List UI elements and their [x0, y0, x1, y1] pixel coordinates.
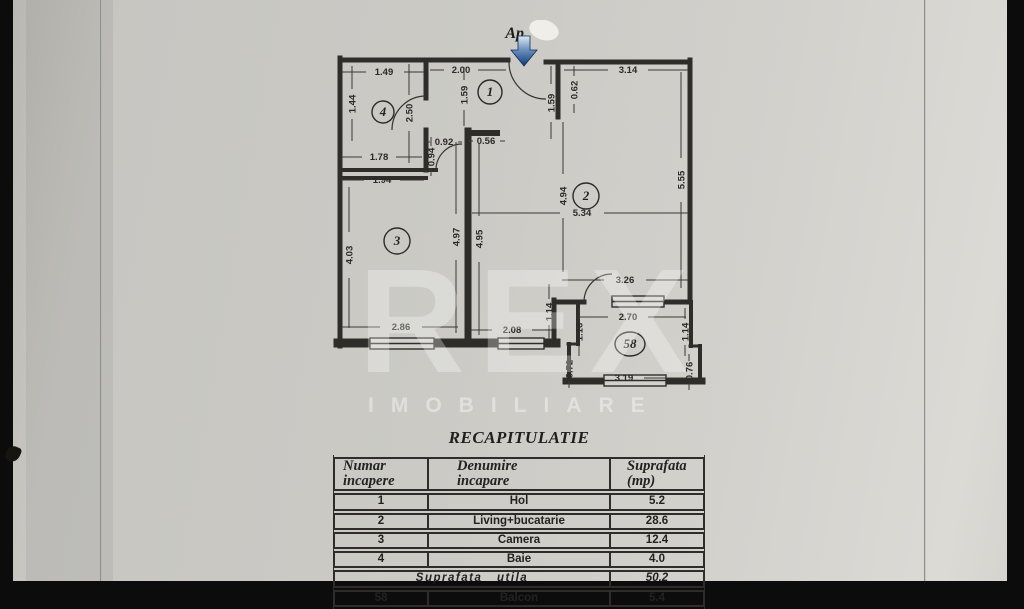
table-cell-num: 3	[334, 532, 428, 549]
table-cell-num: 4	[334, 551, 428, 568]
table-cell-name: Hol	[428, 493, 610, 510]
table-cell-name: Balcon	[428, 590, 610, 607]
table-row: 3 Camera 12.4	[334, 532, 704, 549]
header-numar-incapere: Numar incapere	[334, 457, 428, 491]
table-row: 2 Living+bucatarie 28.6	[334, 513, 704, 530]
dim-label: 2.70	[619, 312, 638, 323]
dim-label: 0.76	[685, 362, 696, 381]
redaction-blob	[527, 20, 561, 44]
table-cell-name: Living+bucatarie	[428, 513, 610, 530]
dim-label: 3.26	[616, 275, 635, 286]
dim-label: 0.92	[435, 137, 454, 148]
dim-label: 1.16	[575, 323, 586, 342]
table-cell-num: 58	[334, 590, 428, 607]
table-summary-row: Suprafata utila 50.2	[334, 570, 704, 587]
header-denumire-incapare: Denumire incapare	[428, 457, 610, 491]
table-cell-area: 28.6	[610, 513, 704, 530]
table-cell-name: Camera	[428, 532, 610, 549]
dim-label: 4.97	[452, 228, 463, 247]
table-row: 1 Hol 5.2	[334, 493, 704, 510]
dim-label: 5.34	[573, 208, 592, 219]
table-cell-num: 2	[334, 513, 428, 530]
room-number-living: 2	[582, 188, 590, 203]
dim-label: 1.49	[375, 67, 394, 78]
dim-label: 1.14	[545, 302, 556, 321]
header-suprafata-mp: Suprafata (mp)	[610, 457, 704, 491]
table-cell-name: Baie	[428, 551, 610, 568]
dim-label: 0.94	[427, 147, 438, 166]
room-number-labels: 4 1 2 3 58	[379, 84, 637, 351]
dim-label: 3.19	[615, 373, 634, 384]
recap-title: RECAPITULATIE	[333, 428, 705, 448]
dim-label: 2.00	[452, 65, 471, 76]
photo-of-floor-plan-document: { "page": { "ap_label": "Ap." }, "waterm…	[0, 0, 1024, 581]
dim-label: 2.86	[392, 322, 411, 333]
table-cell-area: 4.0	[610, 551, 704, 568]
room-number-camera: 3	[393, 233, 401, 248]
summary-value: 50.2	[610, 570, 704, 587]
room-number-baie: 4	[379, 104, 387, 119]
dim-label: 4.03	[345, 246, 356, 265]
dim-label: 0.56	[477, 136, 496, 147]
table-header-row: Numar incapere Denumire incapare Suprafa…	[334, 457, 704, 491]
dim-label: 0.72	[565, 360, 576, 379]
dim-label: 1.44	[348, 94, 359, 113]
paper-shading	[26, 0, 113, 581]
dim-label: 1.94	[373, 175, 392, 186]
recapitulation-section: RECAPITULATIE Numar incapere Denumire in…	[333, 428, 705, 609]
table-cell-area: 12.4	[610, 532, 704, 549]
table-cell-num: 1	[334, 493, 428, 510]
recap-table: Numar incapere Denumire incapare Suprafa…	[333, 455, 705, 609]
summary-label: Suprafata utila	[334, 570, 610, 587]
table-row: 4 Baie 4.0	[334, 551, 704, 568]
table-cell-area: 5.2	[610, 493, 704, 510]
dim-label: 0.62	[570, 81, 581, 100]
dim-label: 4.94	[559, 186, 570, 205]
dim-label: 4.95	[475, 229, 486, 248]
table-cell-area: 5.4	[610, 590, 704, 607]
dim-label: 1.59	[547, 94, 558, 113]
dim-label: 2.50	[405, 104, 416, 123]
floor-plan: Ap.	[325, 20, 710, 432]
room-number-hol: 1	[487, 84, 494, 99]
dim-label: 1.59	[460, 86, 471, 105]
dim-label: 1.14	[681, 322, 692, 341]
room-number-balcon: 58	[624, 336, 638, 351]
table-row-balcon: 58 Balcon 5.4	[334, 590, 704, 607]
dim-label: 1.78	[370, 152, 389, 163]
dim-label: 5.55	[677, 170, 688, 189]
dim-label: 2.08	[503, 325, 522, 336]
dim-label: 3.14	[619, 65, 638, 76]
